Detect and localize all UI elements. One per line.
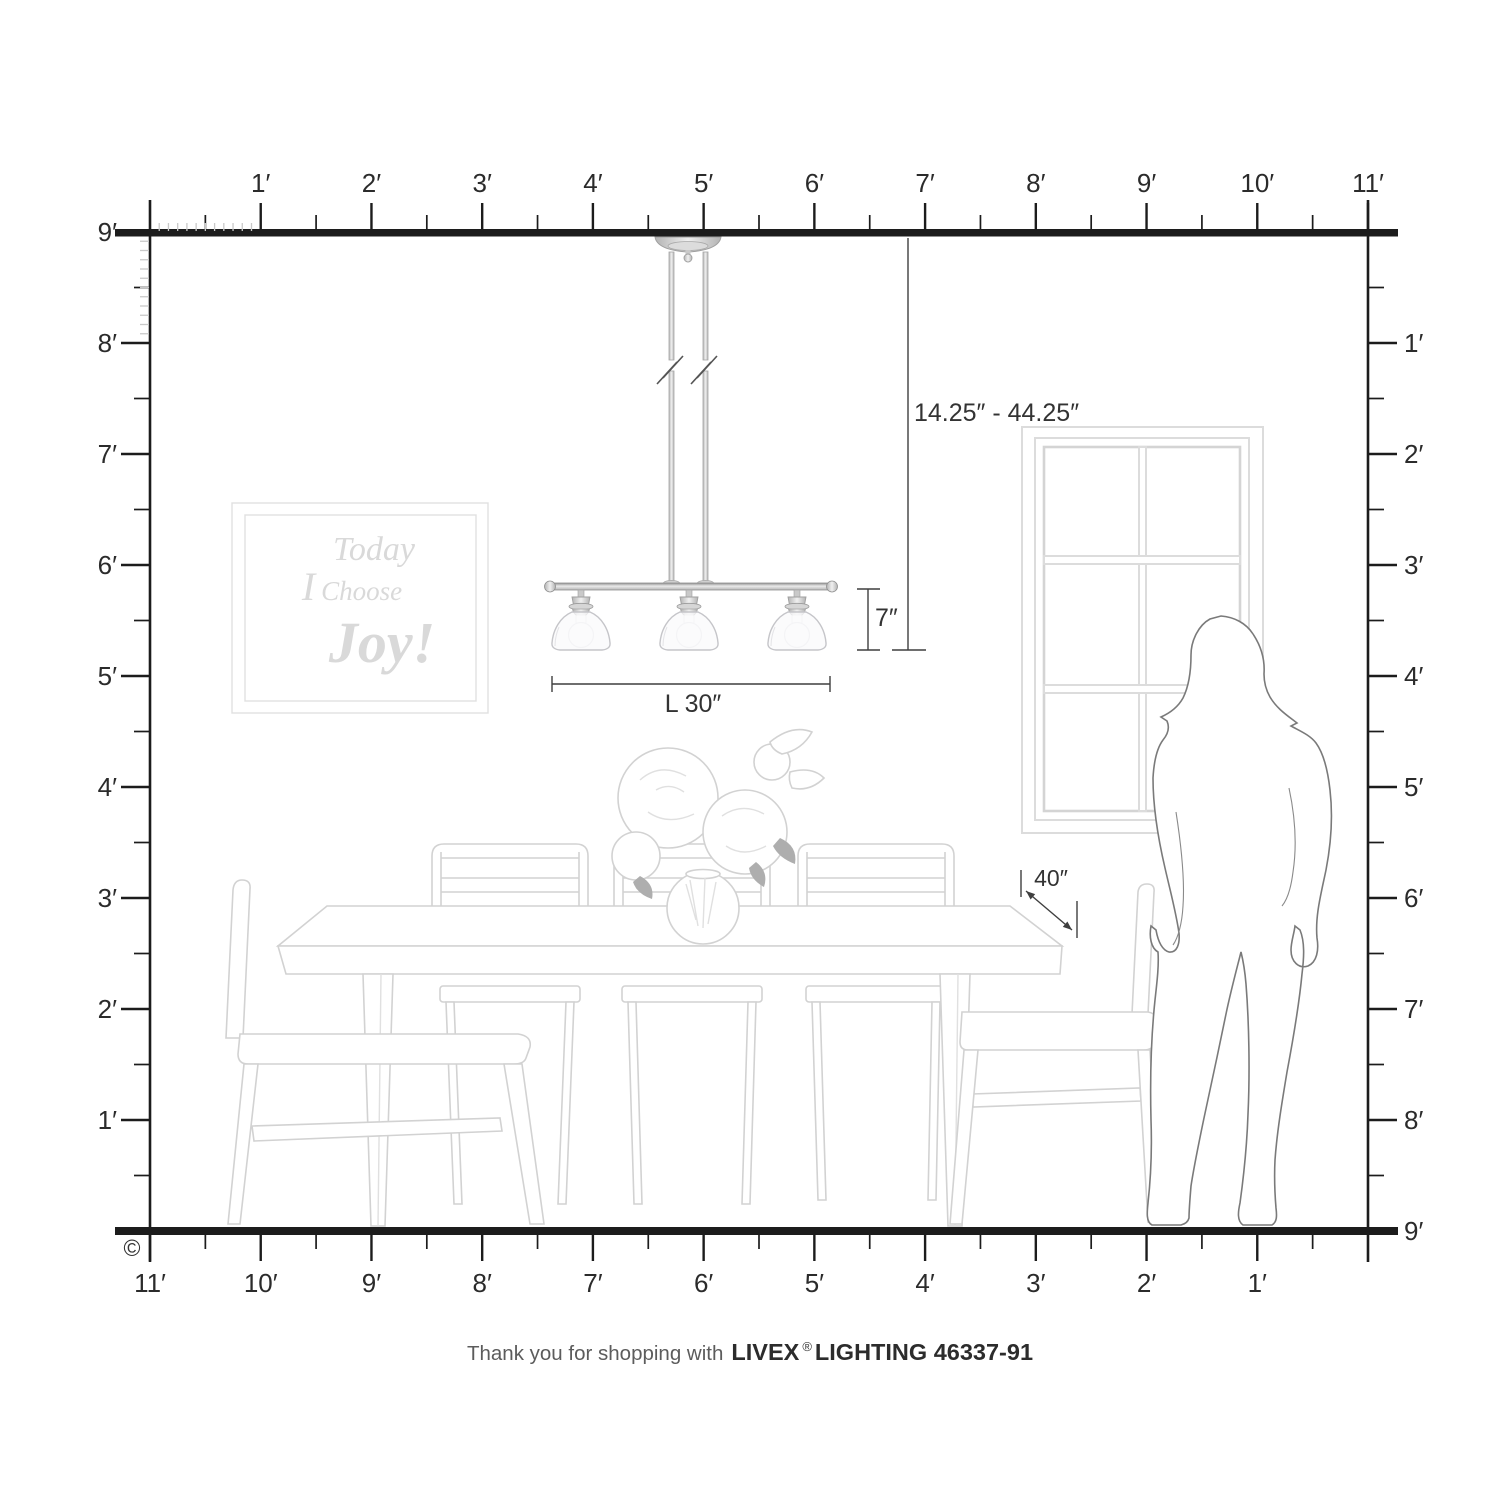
left-ruler-label: 1′ — [98, 1105, 117, 1135]
fixture-length-label: L 30″ — [665, 690, 722, 718]
chair-right-stretcher — [972, 1088, 1141, 1107]
right-ruler-label: 2′ — [1404, 439, 1423, 469]
top-ruler-label: 5′ — [694, 168, 713, 198]
linear-chandelier — [545, 237, 838, 650]
floor-line — [115, 1227, 1398, 1235]
right-ruler-label: 9′ — [1404, 1216, 1423, 1246]
diagram-canvas: Today IChoose Joy! — [0, 0, 1500, 1500]
glass-shade — [768, 612, 826, 650]
lamp-3 — [768, 590, 826, 650]
bottom-ruler-label: 8′ — [473, 1268, 492, 1298]
bottom-ruler-label: 6′ — [694, 1268, 713, 1298]
left-ruler-label: 9′ — [98, 217, 117, 247]
top-ruler-label: 8′ — [1026, 168, 1045, 198]
top-ruler-label: 6′ — [805, 168, 824, 198]
top-ruler-label: 11′ — [1352, 168, 1384, 198]
downrod-left — [657, 252, 683, 583]
left-ruler-label: 8′ — [98, 328, 117, 358]
shade-height-label: 7″ — [875, 604, 898, 632]
top-ruler-label: 1′ — [251, 168, 270, 198]
footer-thanks: Thank you for shopping with — [467, 1342, 723, 1365]
window-muntin-horizontal-1 — [1044, 556, 1240, 564]
chair-right-backrest — [1132, 884, 1154, 1014]
lamp-1 — [552, 590, 610, 650]
bottom-ruler-label: 1′ — [1248, 1268, 1267, 1298]
right-ruler-label: 3′ — [1404, 550, 1423, 580]
top-ruler-label: 7′ — [915, 168, 934, 198]
right-ruler-label: 1′ — [1404, 328, 1423, 358]
copyright-mark: © — [124, 1235, 141, 1261]
right-ruler-label: 7′ — [1404, 994, 1423, 1024]
downrod-right — [691, 252, 717, 583]
wall-art-line3: Joy! — [328, 610, 435, 675]
bottom-ruler-label: 11′ — [134, 1268, 166, 1298]
right-ruler-label: 6′ — [1404, 883, 1423, 913]
top-ruler-label: 3′ — [473, 168, 492, 198]
chair-left-front-leg — [504, 1064, 544, 1224]
left-ruler-label: 5′ — [98, 661, 117, 691]
canopy-finial — [684, 254, 692, 262]
bottom-ruler-label: 2′ — [1137, 1268, 1156, 1298]
chair-back-left — [432, 844, 588, 1204]
bar-finial-right — [827, 581, 838, 592]
top-ruler-label: 9′ — [1137, 168, 1156, 198]
chair-left-seat — [238, 1034, 530, 1064]
ceiling-line — [115, 229, 1398, 237]
footer-caption: Thank you for shopping withLIVEX®LIGHTIN… — [467, 1339, 1033, 1365]
woman-body — [1147, 616, 1331, 1225]
dining-set — [226, 730, 1160, 1226]
bottom-ruler-label: 4′ — [915, 1268, 934, 1298]
fixture-bar — [552, 583, 830, 590]
top-ruler-label: 4′ — [583, 168, 602, 198]
suspension-range-label: 14.25″ - 44.25″ — [914, 399, 1079, 427]
right-ruler-label: 8′ — [1404, 1105, 1423, 1135]
registered-trademark-icon: ® — [802, 1339, 812, 1354]
wall-art-line2-choose: Choose — [321, 576, 402, 606]
wall-art-line1: Today — [333, 531, 416, 568]
left-ruler-label: 7′ — [98, 439, 117, 469]
top-ruler-label: 2′ — [362, 168, 381, 198]
wall-art-frame: Today IChoose Joy! — [232, 503, 488, 713]
vase — [667, 872, 739, 944]
chair-left-backrest — [226, 880, 250, 1038]
footer-brand: LIVEX — [731, 1339, 799, 1365]
glass-shade — [552, 612, 610, 650]
chair-left-rear-leg — [228, 1064, 258, 1224]
bottom-ruler-label: 5′ — [805, 1268, 824, 1298]
right-ruler-label: 5′ — [1404, 772, 1423, 802]
chair-right-seat — [960, 1012, 1157, 1050]
table-edge — [278, 946, 1062, 974]
table-clearance-label: 40″ — [1034, 865, 1068, 891]
flower-bloom — [612, 832, 660, 880]
left-ruler-label: 3′ — [98, 883, 117, 913]
product-dimension-diagram: Today IChoose Joy! — [0, 0, 1500, 1500]
bottom-ruler-label: 7′ — [583, 1268, 602, 1298]
lamp-2 — [660, 590, 718, 650]
right-ruler-label: 4′ — [1404, 661, 1423, 691]
leaf — [770, 730, 812, 754]
wall-art-line2: IChoose — [301, 564, 402, 609]
footer-model: LIGHTING 46337-91 — [815, 1339, 1033, 1365]
leaf — [789, 770, 824, 789]
bottom-ruler-label: 3′ — [1026, 1268, 1045, 1298]
left-ruler-label: 6′ — [98, 550, 117, 580]
window-muntin-vertical — [1139, 447, 1146, 811]
flower-peony-2 — [703, 790, 787, 874]
bar-finial-left — [545, 581, 556, 592]
left-ruler-label: 2′ — [98, 994, 117, 1024]
bottom-ruler-label: 9′ — [362, 1268, 381, 1298]
dining-table — [278, 906, 1062, 1226]
woman-silhouette — [1147, 616, 1331, 1225]
top-ruler-label: 10′ — [1240, 168, 1274, 198]
glass-shade — [660, 612, 718, 650]
bottom-ruler-label: 10′ — [244, 1268, 278, 1298]
left-ruler-label: 4′ — [98, 772, 117, 802]
chair-back-right — [798, 844, 954, 1200]
wall-art-line2-i: I — [301, 564, 317, 609]
